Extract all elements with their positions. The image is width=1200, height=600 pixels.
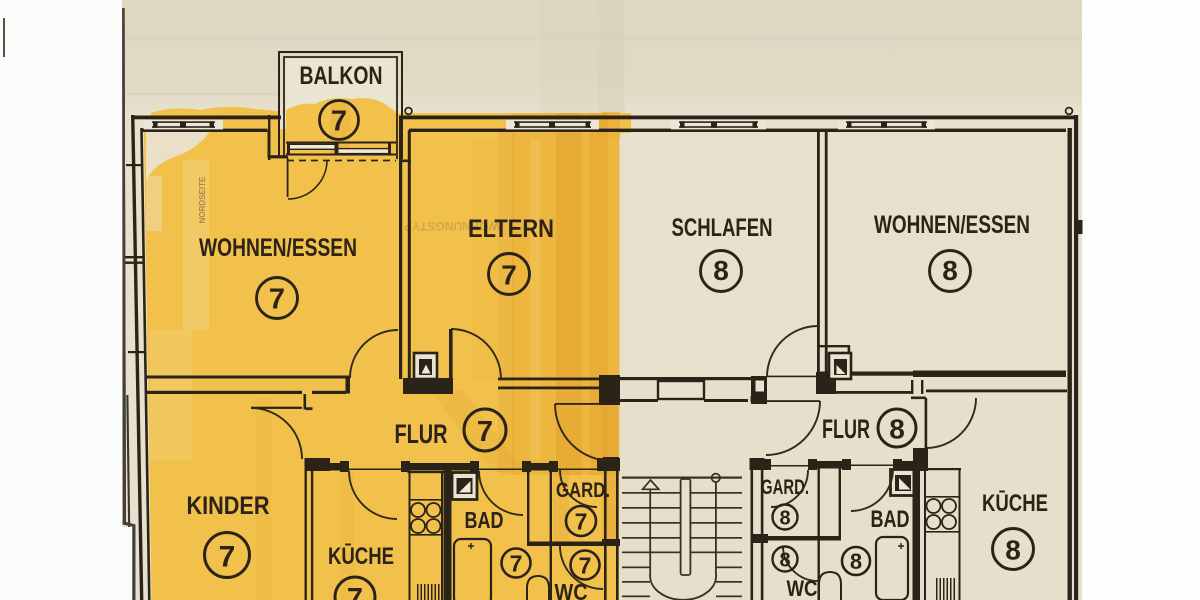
svg-text:7: 7 <box>501 260 517 291</box>
svg-text:8: 8 <box>850 549 862 574</box>
svg-text:8: 8 <box>942 255 958 286</box>
svg-text:WOHNEN/ESSEN: WOHNEN/ESSEN <box>199 234 357 262</box>
svg-text:WC: WC <box>787 576 818 600</box>
svg-text:BAD: BAD <box>871 506 910 533</box>
svg-text:BAD: BAD <box>465 507 504 533</box>
svg-text:7: 7 <box>269 284 285 316</box>
svg-text:8: 8 <box>713 255 729 286</box>
svg-text:GARD.: GARD. <box>556 478 610 502</box>
svg-text:7: 7 <box>331 106 347 138</box>
svg-text:BALKON: BALKON <box>300 62 383 90</box>
svg-text:GARD.: GARD. <box>761 475 809 499</box>
svg-text:NORDSEITE: NORDSEITE <box>198 176 207 223</box>
svg-text:8: 8 <box>889 414 905 445</box>
svg-text:7: 7 <box>510 551 523 577</box>
svg-text:KŪCHE: KŪCHE <box>982 490 1048 517</box>
svg-text:7: 7 <box>477 416 493 448</box>
svg-text:7: 7 <box>575 509 588 535</box>
svg-text:SCHLAFEN: SCHLAFEN <box>672 214 773 242</box>
svg-text:WOHNEN/ESSEN: WOHNEN/ESSEN <box>874 211 1030 239</box>
svg-text:KINDER: KINDER <box>187 492 270 520</box>
svg-text:7: 7 <box>579 553 592 579</box>
svg-text:KŪCHE: KŪCHE <box>328 543 394 570</box>
svg-text:8: 8 <box>1005 535 1021 566</box>
svg-text:FLUR: FLUR <box>822 414 870 444</box>
svg-text:7: 7 <box>219 541 236 574</box>
svg-text:7: 7 <box>347 583 363 600</box>
svg-text:8: 8 <box>779 508 790 530</box>
svg-text:8: 8 <box>779 550 790 572</box>
svg-text:FLUR: FLUR <box>395 419 448 449</box>
svg-text:WOHNUNGSTYP: WOHNUNGSTYP <box>404 219 500 233</box>
svg-text:WC: WC <box>555 579 588 600</box>
